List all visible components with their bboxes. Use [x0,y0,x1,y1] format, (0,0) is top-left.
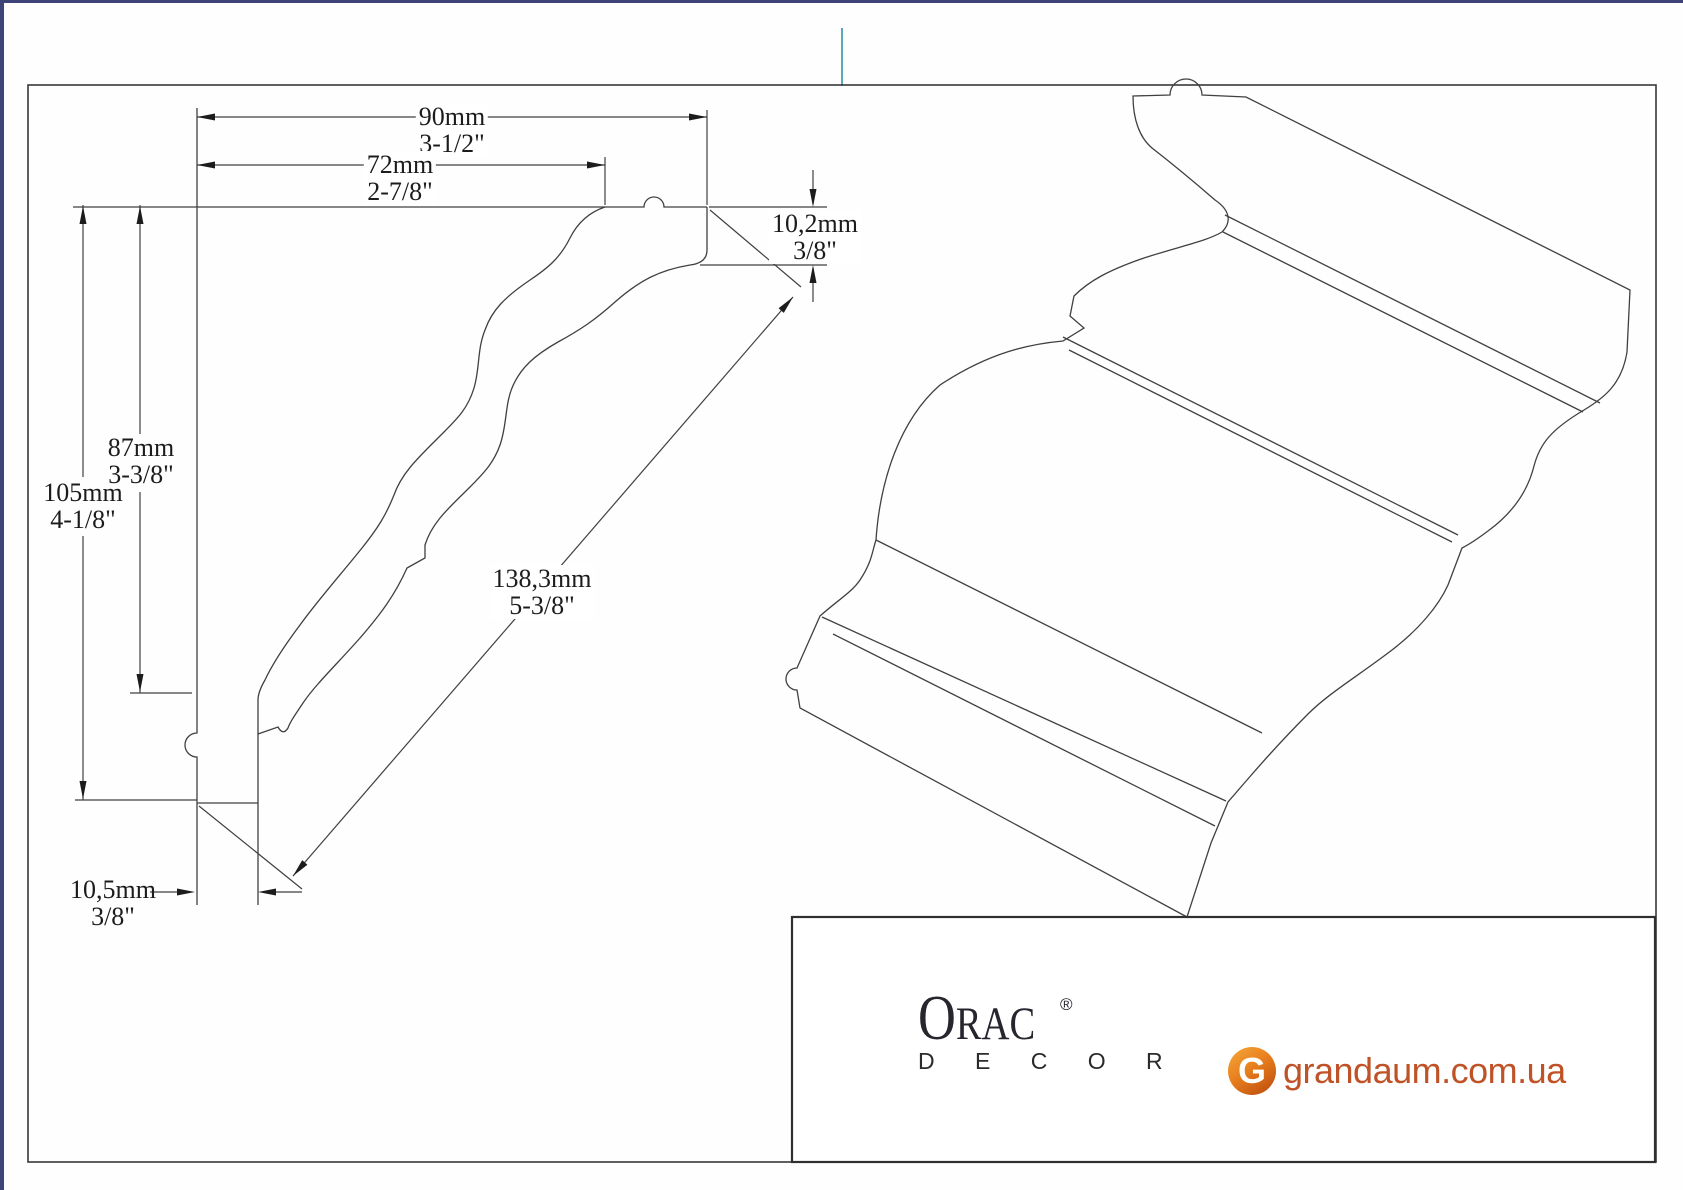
dim-label-face-length: 138,3mm 5-3/8" [490,565,595,619]
orac-wordmark: ORAC [918,995,1041,1051]
grandaum-g-icon: G [1228,1047,1276,1095]
molding-3d [786,79,1630,917]
dim-label-top-thickness: 10,2mm 3/8" [769,210,861,264]
dim-label-total-height: 105mm 4-1/8" [43,479,122,533]
ridge-top-b [1223,232,1583,412]
page: 90mm 3-1/2" 72mm 2-7/8" 87mm 3-3/8" 105m… [0,0,1683,1190]
wall-line [185,108,197,905]
grandaum-logo: G grandaum.com.ua [1228,1047,1566,1095]
ridge-mid-a [1063,337,1458,535]
registered-trademark-icon: ® [1060,995,1073,1015]
ridge-bottom-a [822,617,1226,801]
dim-label-inner-width: 72mm 2-7/8" [364,151,436,205]
orac-decor-subtitle: D E C O R [918,1048,1180,1075]
dimension-lines [75,110,827,892]
molding-3d-outline [786,79,1630,917]
profile-right-edge [690,207,707,265]
profile-back-curve [258,207,605,700]
ridge-mid-b [1069,350,1452,542]
orac-logo: ORAC [918,995,1068,1051]
dimension-arrowheads [80,114,817,896]
dim-label-bottom-thickness: 10,5mm 3/8" [70,876,156,930]
dim-label-total-width: 90mm 3-1/2" [416,103,488,157]
ridge-top-a [1225,215,1600,403]
ridge-mid-lower [876,540,1262,733]
dim-ext-1383 [199,210,801,889]
grandaum-domain: grandaum.com.ua [1283,1050,1566,1092]
profile-face-curve [258,265,690,734]
ridge-bottom-b [833,634,1215,826]
logo-box-content: ORAC ® D E C O R [792,917,1655,1162]
